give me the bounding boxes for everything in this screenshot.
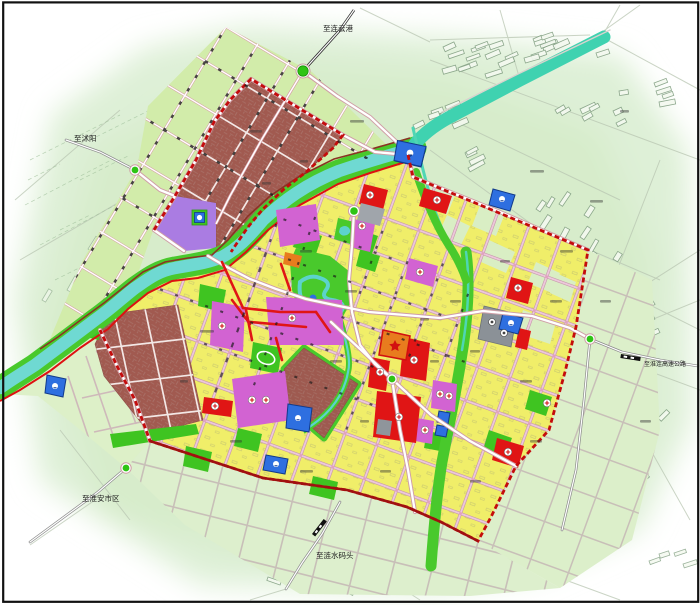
svg-text:至连云港: 至连云港 (323, 23, 353, 33)
svg-text:至涟水码头: 至涟水码头 (316, 550, 354, 560)
svg-text:至淮安市区: 至淮安市区 (82, 493, 120, 503)
svg-text:至沭阳: 至沭阳 (74, 133, 97, 143)
svg-text:至淮连高速公路: 至淮连高速公路 (644, 360, 686, 368)
